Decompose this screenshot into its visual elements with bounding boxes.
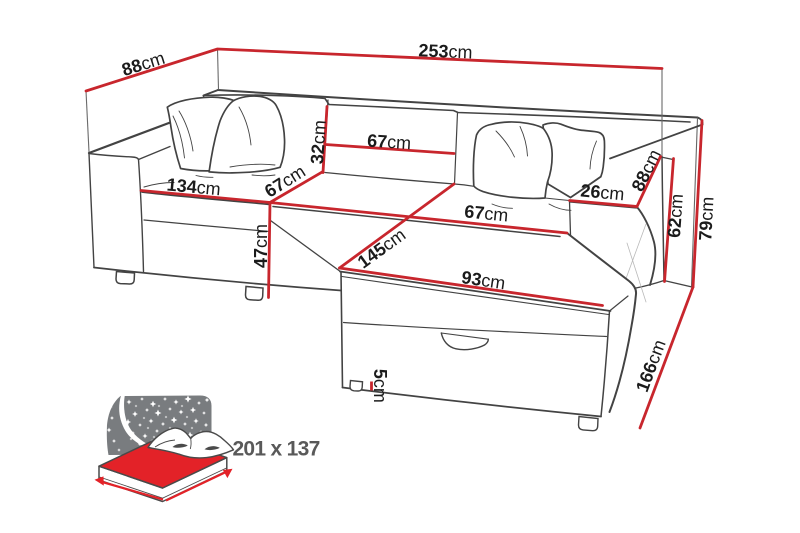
svg-text:32cm: 32cm [307,119,330,164]
svg-text:201 x 137: 201 x 137 [232,438,319,461]
svg-text:253cm: 253cm [418,40,473,62]
svg-text:67cm: 67cm [464,201,510,225]
svg-text:62cm: 62cm [664,193,687,238]
svg-text:5cm: 5cm [370,369,390,403]
svg-text:79cm: 79cm [695,196,717,241]
svg-text:67cm: 67cm [367,131,412,154]
svg-text:26cm: 26cm [580,180,626,204]
svg-text:47cm: 47cm [251,224,271,268]
